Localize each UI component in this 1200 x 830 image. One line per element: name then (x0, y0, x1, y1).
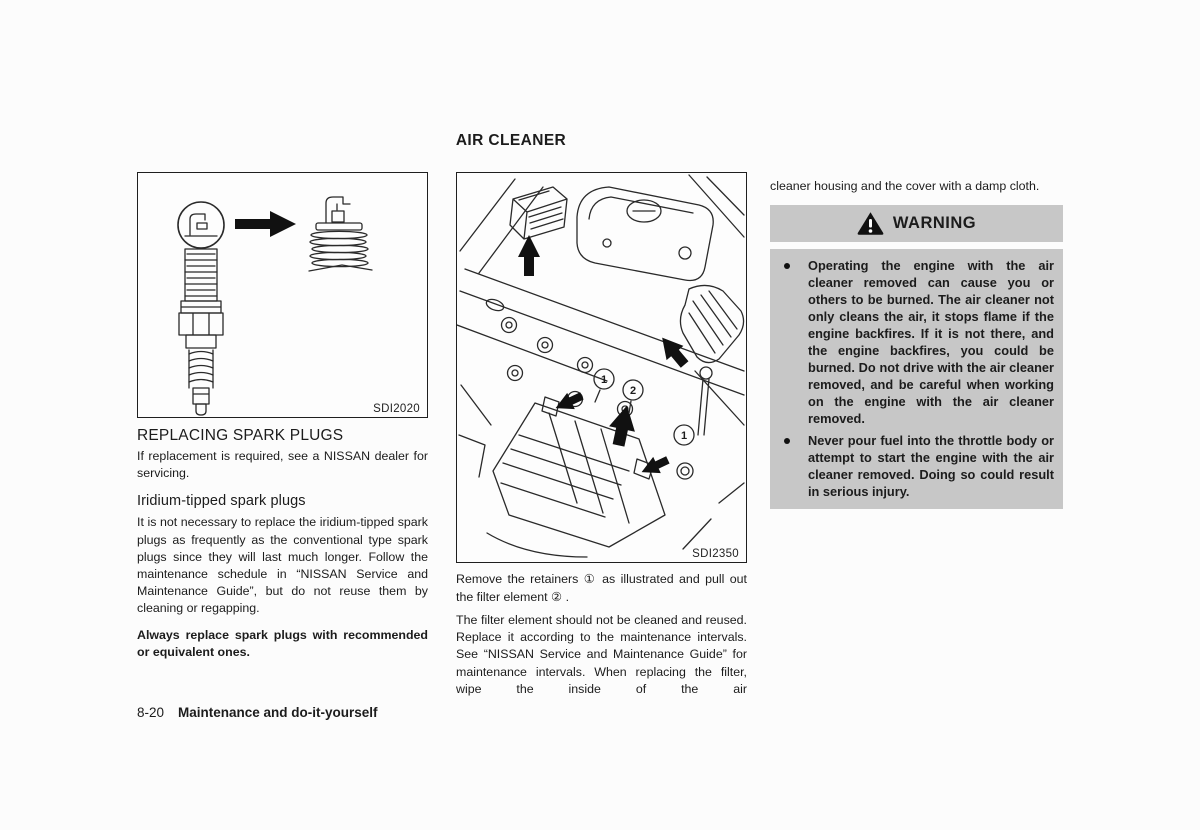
figure-code: SDI2020 (371, 403, 422, 415)
page-number: 8-20 (137, 705, 164, 720)
page-footer: 8-20Maintenance and do-it-yourself (137, 705, 378, 720)
warning-text: Never pour fuel into the throttle body o… (808, 433, 1054, 499)
paragraph: Remove the retainers ① as illustrated an… (456, 570, 747, 606)
paragraph-bold: Always replace spark plugs with recommen… (137, 627, 428, 661)
bullet-icon (784, 438, 790, 444)
warning-triangle-icon (857, 211, 884, 236)
engine-bay-illustration: 1 2 1 (457, 173, 745, 561)
callout-1: 1 (594, 369, 614, 402)
section-heading: REPLACING SPARK PLUGS (137, 427, 428, 445)
paragraph: If replacement is required, see a NISSAN… (137, 448, 428, 482)
sub-heading: Iridium-tipped spark plugs (137, 493, 428, 509)
svg-text:1: 1 (681, 430, 687, 442)
spark-plug-illustration (138, 173, 426, 416)
manual-page: AIR CLEANER (0, 0, 1200, 830)
paragraph: It is not necessary to replace the iridi… (137, 514, 428, 617)
spark-plug-figure: SDI2020 (137, 172, 428, 418)
warning-header: WARNING (770, 205, 1063, 242)
air-cleaner-figure: 1 2 1 SDI2350 (456, 172, 747, 563)
warning-item: Never pour fuel into the throttle body o… (770, 432, 1054, 500)
warning-text: Operating the engine with the air cleane… (808, 258, 1054, 426)
arrow-right-icon (235, 211, 296, 237)
chapter-title: Maintenance and do-it-yourself (178, 705, 378, 720)
filter-arrow-icon (606, 403, 640, 448)
arrow-up-icon (518, 235, 540, 276)
left-column: SDI2020 REPLACING SPARK PLUGS If replace… (137, 172, 428, 661)
figure-code: SDI2350 (690, 548, 741, 560)
paragraph: cleaner housing and the cover with a dam… (770, 178, 1063, 195)
bullet-icon (784, 263, 790, 269)
svg-text:1: 1 (601, 374, 607, 386)
right-column: cleaner housing and the cover with a dam… (770, 178, 1063, 509)
warning-title: WARNING (893, 214, 976, 233)
enlarged-tip (309, 197, 372, 271)
callout-1b: 1 (674, 425, 694, 445)
arrow-up-left-icon (654, 331, 693, 372)
page-title: AIR CLEANER (0, 132, 1022, 150)
warning-body: Operating the engine with the air cleane… (770, 249, 1063, 509)
paragraph: The filter element should not be cleaned… (456, 612, 747, 698)
middle-column: 1 2 1 SDI2350 Remove the retainers ① as … (456, 172, 747, 698)
warning-item: Operating the engine with the air cleane… (770, 257, 1054, 427)
svg-text:2: 2 (630, 385, 636, 397)
